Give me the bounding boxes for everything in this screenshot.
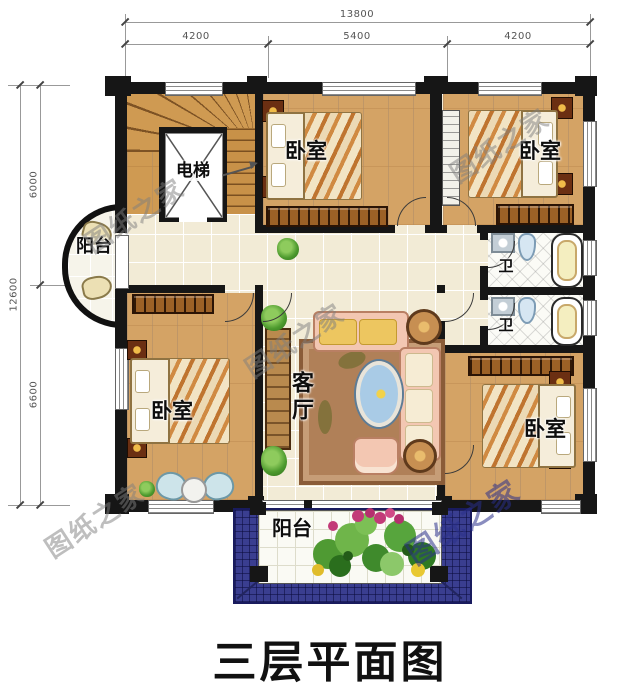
round-side-table xyxy=(403,439,437,473)
window xyxy=(165,82,223,96)
room-label-bedroom: 卧室 xyxy=(278,140,334,162)
dim-line xyxy=(40,85,41,505)
bathtub xyxy=(551,297,583,346)
room-label-bath: 卫 xyxy=(494,318,518,334)
wall-corridor-top-c xyxy=(477,225,595,233)
dim-left-seg-1: 6000 xyxy=(29,158,40,212)
junction-pillar xyxy=(247,76,267,84)
watermark: 图纸之家 xyxy=(37,473,151,565)
wall-living-right-a xyxy=(437,285,445,293)
coffee-table xyxy=(356,361,402,427)
wall-corridor-bottom xyxy=(127,285,225,293)
room-label-bedroom: 卧室 xyxy=(144,400,200,422)
rug-motif xyxy=(318,400,332,434)
page-title: 三层平面图 xyxy=(205,626,455,686)
corner-pillar xyxy=(105,76,131,96)
room-label-living: 客厅 xyxy=(286,370,312,426)
wall-bath-divider xyxy=(480,287,583,295)
room-label-balcony-bottom: 阳台 xyxy=(266,518,318,539)
side-table xyxy=(181,477,207,503)
dim-top-seg-1: 4200 xyxy=(166,31,226,42)
corner-pillar xyxy=(575,76,597,96)
dim-top-total: 13800 xyxy=(302,9,412,20)
sofa-cushion xyxy=(405,353,433,387)
nightstand xyxy=(127,340,147,360)
window xyxy=(583,121,597,187)
wardrobe xyxy=(496,204,574,225)
wall-bedroom-br-top xyxy=(443,345,583,353)
balcony-post xyxy=(250,502,266,515)
sofa-cushion xyxy=(359,319,397,345)
corridor-plant xyxy=(277,238,299,260)
room-label-bath: 卫 xyxy=(494,259,518,275)
window xyxy=(148,500,214,514)
floorplan-canvas: 13800 4200 5400 4200 12600 6000 6600 xyxy=(0,0,640,686)
dim-line xyxy=(125,44,591,45)
dim-line xyxy=(125,22,591,23)
bathtub xyxy=(551,233,583,288)
balcony-post xyxy=(250,566,268,582)
sofa-cushion xyxy=(405,389,433,423)
window xyxy=(322,82,416,96)
window xyxy=(583,388,597,462)
wardrobe xyxy=(132,294,214,314)
dim-left-total: 12600 xyxy=(9,268,20,322)
dim-line xyxy=(20,85,21,505)
dim-extension-line xyxy=(125,14,126,78)
bathtub-basin xyxy=(557,240,577,281)
dim-top-seg-3: 4200 xyxy=(488,31,548,42)
junction-pillar xyxy=(424,76,448,84)
wall-bedrooms-divider xyxy=(430,94,442,225)
dim-extension-line xyxy=(590,14,591,78)
plant xyxy=(261,446,287,476)
dim-left-seg-2: 6600 xyxy=(29,368,40,422)
armchair xyxy=(353,437,399,475)
window xyxy=(583,300,597,336)
elevator-door-gap xyxy=(179,216,207,222)
dim-top-seg-2: 5400 xyxy=(327,31,387,42)
bathtub-basin xyxy=(557,304,577,339)
window xyxy=(583,240,597,276)
room-label-bedroom: 卧室 xyxy=(517,418,573,440)
wardrobe xyxy=(266,206,388,227)
window xyxy=(541,500,581,514)
wall-corridor-top-b xyxy=(425,225,447,233)
window xyxy=(478,82,542,96)
round-side-table xyxy=(406,309,442,345)
wall-bath-left-a xyxy=(480,225,488,240)
